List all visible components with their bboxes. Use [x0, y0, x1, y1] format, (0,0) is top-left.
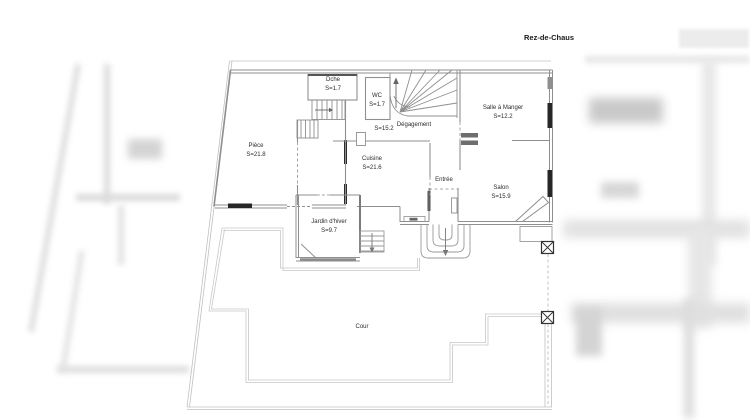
corner-fireplace [516, 197, 549, 222]
room-label-dche: Dche S=1.7 [325, 76, 341, 93]
plan-title: Rez-de-Chaus [524, 33, 574, 42]
room-name: WC [369, 92, 385, 101]
floor-plan-drawing [0, 0, 750, 420]
room-name: Cuisine [362, 155, 382, 164]
staircase-small-b [297, 120, 318, 138]
furniture-marks [461, 133, 478, 145]
room-label-cour: Cour [355, 324, 368, 330]
room-area-degagement: S=15.2 [374, 126, 393, 132]
room-label-piece: Pièce S=21.8 [246, 142, 265, 159]
room-name: Salle à Manger [483, 104, 523, 113]
winding-staircase [390, 70, 457, 118]
room-name: Pièce [246, 142, 265, 151]
room-area: S=1.7 [369, 101, 385, 110]
room-name: Dche [325, 76, 341, 85]
room-area: S=21.6 [362, 164, 382, 173]
floor-plan-screenshot: Rez-de-Chaus Dche S=1.7 WC S=1.7 S=15.2 … [0, 0, 750, 420]
room-area: S=21.8 [246, 151, 265, 160]
room-name: Salon [491, 184, 510, 193]
room-area: S=9.7 [311, 227, 347, 236]
room-label-cuisine: Cuisine S=21.6 [362, 155, 382, 172]
porch-and-columns [520, 227, 554, 324]
room-label-jardin-dhiver: Jardin d'hiver S=9.7 [311, 218, 347, 235]
room-area: S=12.2 [483, 113, 523, 122]
exterior-steps-entrance [421, 225, 470, 259]
room-label-salon: Salon S=15.9 [491, 184, 510, 201]
door-leaf [301, 244, 316, 258]
room-area: S=15.9 [491, 193, 510, 202]
room-area: S=1.7 [325, 85, 341, 94]
room-label-entree: Entrée [435, 177, 453, 183]
steps-jardin [360, 231, 384, 253]
room-label-wc: WC S=1.7 [369, 92, 385, 109]
room-name: Jardin d'hiver [311, 218, 347, 227]
staircase-small-a [312, 100, 345, 120]
room-label-degagement: Dégagement [397, 122, 431, 128]
room-label-salle-a-manger: Salle à Manger S=12.2 [483, 104, 523, 121]
